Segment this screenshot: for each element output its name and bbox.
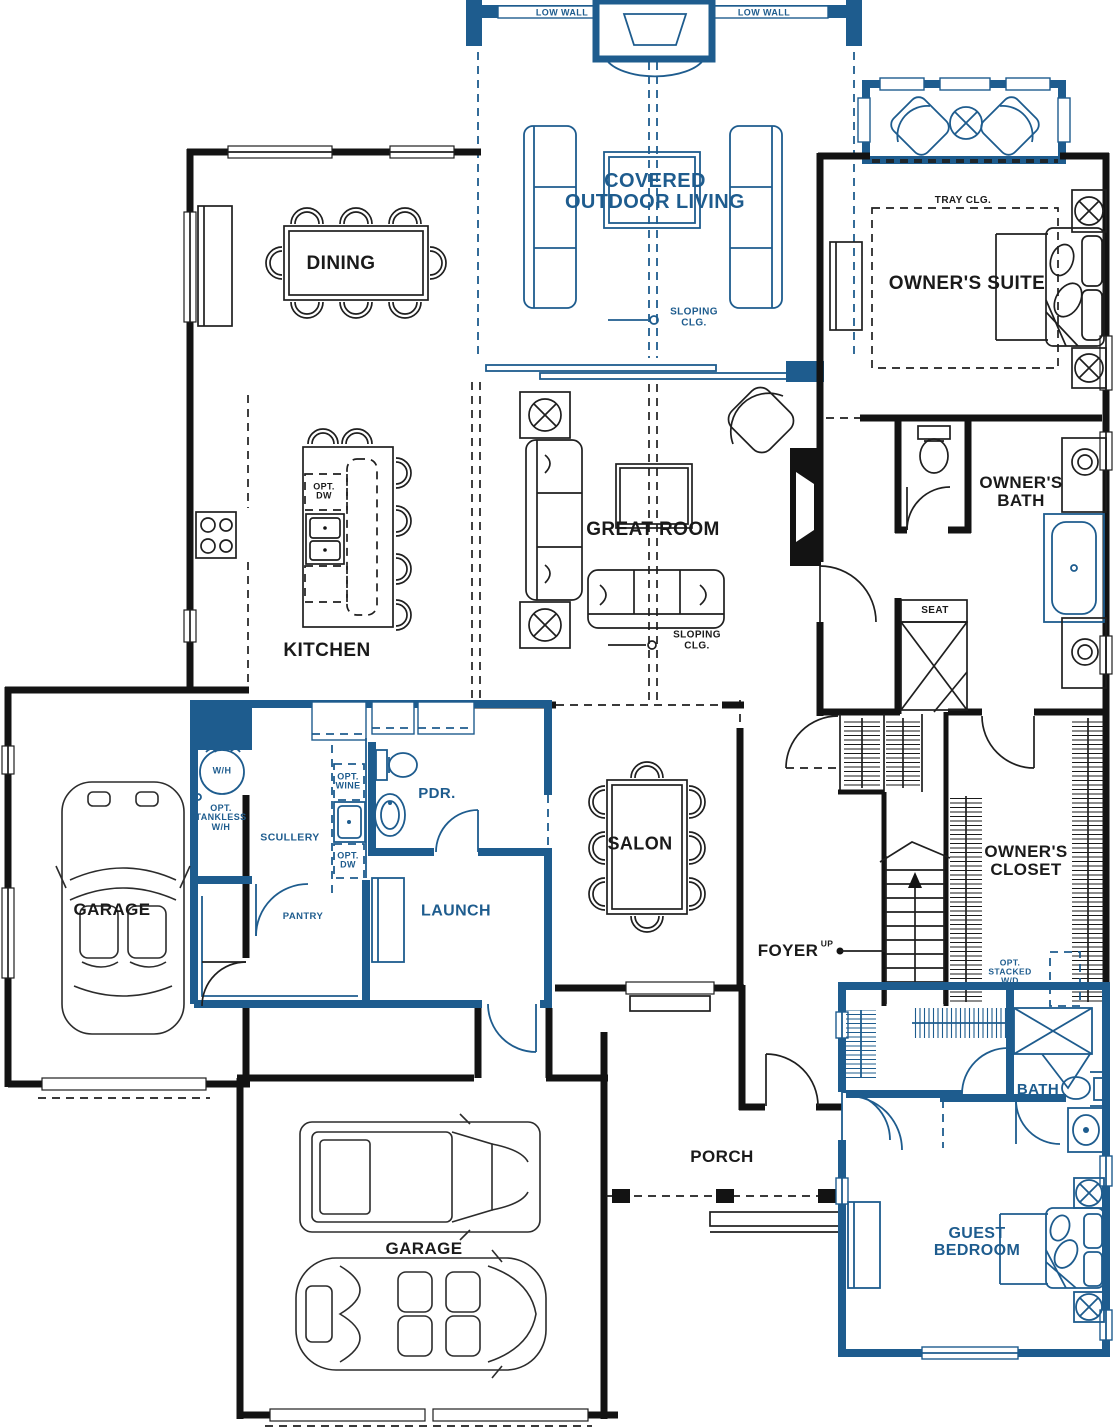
label-seat: SEAT [921,606,949,617]
room-label-low-wall-left: LOW WALL [536,8,588,17]
outdoor-sofa-left [524,126,576,308]
guest-bath-walls [940,1098,1066,1148]
room-label-garage-left: GARAGE [73,901,150,919]
label-opt-dw-scullery: OPT. DW [332,852,364,871]
kitchen-island [303,447,393,627]
bay-chair-right [977,93,1042,158]
scullery-sink [334,802,365,842]
room-label-launch: LAUNCH [421,904,491,921]
room-label-pantry: PANTRY [283,912,323,922]
label-opt-wine: OPT. WINE [330,773,366,792]
island-sink [306,514,344,564]
label-opt-stacked-wd: OPT. STACKED W/D [982,959,1038,986]
sofa-bottom [588,570,724,628]
owners-suite-bay-window [858,78,1070,162]
pantry-area [194,880,366,1004]
room-label-owners-suite: OWNER'S SUITE [889,274,1045,294]
outdoor-fireplace-icon [596,1,712,76]
room-label-dining: DINING [307,254,376,274]
guest-closet [846,990,1010,1094]
bay-chair-left [887,93,952,158]
guest-shower [1014,1008,1092,1088]
room-label-bath-guest: BATH [1017,1082,1059,1098]
great-room-furniture [520,383,821,649]
sofa-left [526,440,582,600]
porch-steps [710,1212,840,1232]
label-opt-tankless-wh: OPT. TANKLESS W/H [190,804,252,832]
room-label-low-wall-right: LOW WALL [738,8,790,17]
floor-plan: LOW WALL LOW WALL COVERED OUTDOOR LIVING… [0,0,1117,1428]
label-tray-clg: TRAY CLG. [935,196,991,207]
owners-suite-furniture [820,190,1106,622]
end-table-lamp-bottom [520,602,570,648]
corner-chair [724,383,799,458]
guest-suite [836,982,1112,1359]
scullery-block [194,700,552,1052]
owners-dresser [830,242,862,330]
room-label-foyer: FOYER [758,942,819,960]
porch-columns [606,1189,840,1203]
room-label-covered-outdoor-living: COVERED OUTDOOR LIVING [563,171,748,213]
label-wh: W/H [213,766,232,775]
buffet [198,206,232,326]
room-label-owners-closet: OWNER'S CLOSET [979,843,1074,879]
guest-sink [1068,1108,1106,1152]
room-label-porch: PORCH [690,1148,753,1166]
bathtub [1044,514,1104,622]
guest-toilet [1062,1072,1106,1106]
wc-toilet [918,426,950,473]
end-table-lamp-top [520,392,570,438]
guest-dresser [848,1202,880,1288]
pdr-toilet [376,750,417,780]
room-label-kitchen: KITCHEN [283,641,370,661]
pdr-sink [375,794,405,836]
room-label-garage-bottom: GARAGE [385,1240,462,1258]
powder-room [368,742,552,856]
label-sloping-clg-great: SLOPING CLG. [668,631,726,652]
label-up: UP [821,940,834,949]
room-label-scullery: SCULLERY [260,832,319,843]
outdoor-sofa-right [730,126,782,308]
room-label-owners-bath: OWNER'S BATH [975,474,1067,510]
room-label-salon: SALON [608,835,673,854]
floor-plan-drawing [0,0,1117,1428]
room-label-guest-bedroom: GUEST BEDROOM [920,1226,1035,1260]
room-label-great-room: GREAT ROOM [586,520,719,540]
great-room-fireplace-icon [790,448,821,566]
front-door [766,1054,818,1106]
room-label-pdr: PDR. [418,786,455,802]
cooktop [196,512,236,558]
stairs [837,842,951,1004]
bay-table [950,107,982,139]
car-sports [296,1250,546,1378]
car-truck [300,1114,540,1240]
owners-nightstand-top [1072,190,1106,232]
label-opt-dw-island: OPT. DW [308,483,340,502]
label-sloping-clg-outdoor: SLOPING CLG. [665,308,723,329]
